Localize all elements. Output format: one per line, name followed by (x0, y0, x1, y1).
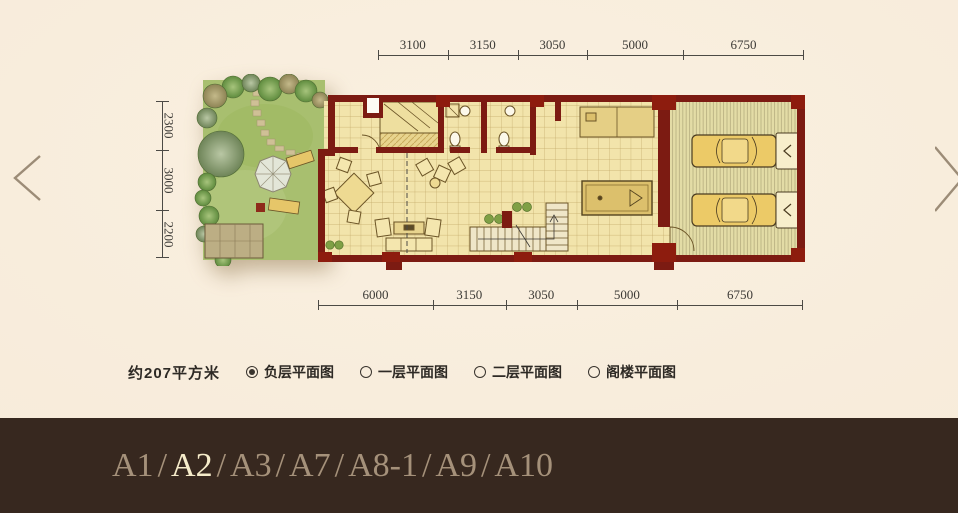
unit-tab-a7[interactable]: A7 (289, 447, 331, 485)
area-label: 约207平方米 (128, 362, 220, 383)
floor-option-label: 一层平面图 (378, 362, 448, 382)
floor-option[interactable]: 一层平面图 (360, 362, 448, 382)
dimension-value: 3050 (528, 288, 554, 301)
tab-separator: / (422, 447, 431, 485)
dimension-value: 3150 (470, 38, 496, 51)
dimension-value: 5000 (614, 288, 640, 301)
unit-tab-a2[interactable]: A2 (171, 447, 213, 485)
dimension-value: 3050 (539, 38, 565, 51)
dimension-segment: 2300 (155, 101, 183, 150)
dimension-segment: 2200 (155, 210, 183, 258)
radio-selected-icon[interactable] (246, 366, 258, 378)
dimension-value: 3100 (400, 38, 426, 51)
floor-selector-row: 约207平方米 负层平面图一层平面图二层平面图阁楼平面图 (128, 361, 676, 383)
unit-tab-a3[interactable]: A3 (230, 447, 272, 485)
radio-icon[interactable] (474, 366, 486, 378)
floorplan-page: 31003150305050006750 6000315030505000675… (0, 0, 958, 513)
unit-tab-a10[interactable]: A10 (494, 447, 553, 485)
tab-separator: / (335, 447, 344, 485)
dimension-line-left: 230030002200 (155, 101, 183, 258)
radio-icon[interactable] (360, 366, 372, 378)
dimension-value: 2200 (163, 221, 176, 247)
dimension-value: 6000 (362, 288, 388, 301)
floorplan-drawing (318, 95, 805, 273)
dimension-line-top: 31003150305050006750 (378, 38, 804, 60)
dimension-value: 2300 (163, 113, 176, 139)
garden-illustration (193, 74, 333, 266)
floor-option[interactable]: 二层平面图 (474, 362, 562, 382)
next-arrow-icon[interactable] (935, 145, 958, 213)
dimension-value: 3150 (456, 288, 482, 301)
unit-tabs-bar: A1/A2/A3/A7/A8-1/A9/A10 (0, 418, 958, 513)
floor-option-label: 阁楼平面图 (606, 362, 676, 382)
dimension-segment: 3150 (433, 288, 506, 310)
tab-separator: / (217, 447, 226, 485)
dimension-segment: 5000 (587, 38, 683, 60)
dimension-segment: 3050 (518, 38, 587, 60)
car (692, 133, 800, 169)
car (692, 192, 800, 228)
tab-separator: / (276, 447, 285, 485)
floor-option[interactable]: 负层平面图 (246, 362, 334, 382)
floor-options: 负层平面图一层平面图二层平面图阁楼平面图 (246, 362, 676, 382)
dimension-segment: 3150 (448, 38, 518, 60)
floor-option[interactable]: 阁楼平面图 (588, 362, 676, 382)
dimension-value: 6750 (727, 288, 753, 301)
floor-option-label: 负层平面图 (264, 362, 334, 382)
tab-separator: / (481, 447, 490, 485)
unit-tab-a8-1[interactable]: A8-1 (348, 447, 418, 485)
floor-option-label: 二层平面图 (492, 362, 562, 382)
dimension-segment: 6750 (683, 38, 804, 60)
deck (205, 224, 263, 258)
dimension-value: 5000 (622, 38, 648, 51)
unit-tab-a1[interactable]: A1 (112, 447, 154, 485)
dimension-segment: 3050 (506, 288, 577, 310)
radio-icon[interactable] (588, 366, 600, 378)
unit-tab-a9[interactable]: A9 (435, 447, 477, 485)
dimension-line-bottom: 60003150305050006750 (318, 288, 803, 310)
tab-separator: / (158, 447, 167, 485)
billiard-table (582, 181, 652, 215)
column-block (363, 95, 383, 118)
garden-table (256, 203, 265, 212)
dimension-segment: 3000 (155, 150, 183, 210)
dimension-segment: 3100 (378, 38, 448, 60)
dimension-value: 3000 (163, 167, 176, 193)
prev-arrow-icon[interactable] (13, 155, 41, 201)
tatami-table (580, 107, 654, 137)
dimension-segment: 6750 (677, 288, 803, 310)
dimension-segment: 5000 (577, 288, 677, 310)
dimension-value: 6750 (731, 38, 757, 51)
dimension-segment: 6000 (318, 288, 433, 310)
